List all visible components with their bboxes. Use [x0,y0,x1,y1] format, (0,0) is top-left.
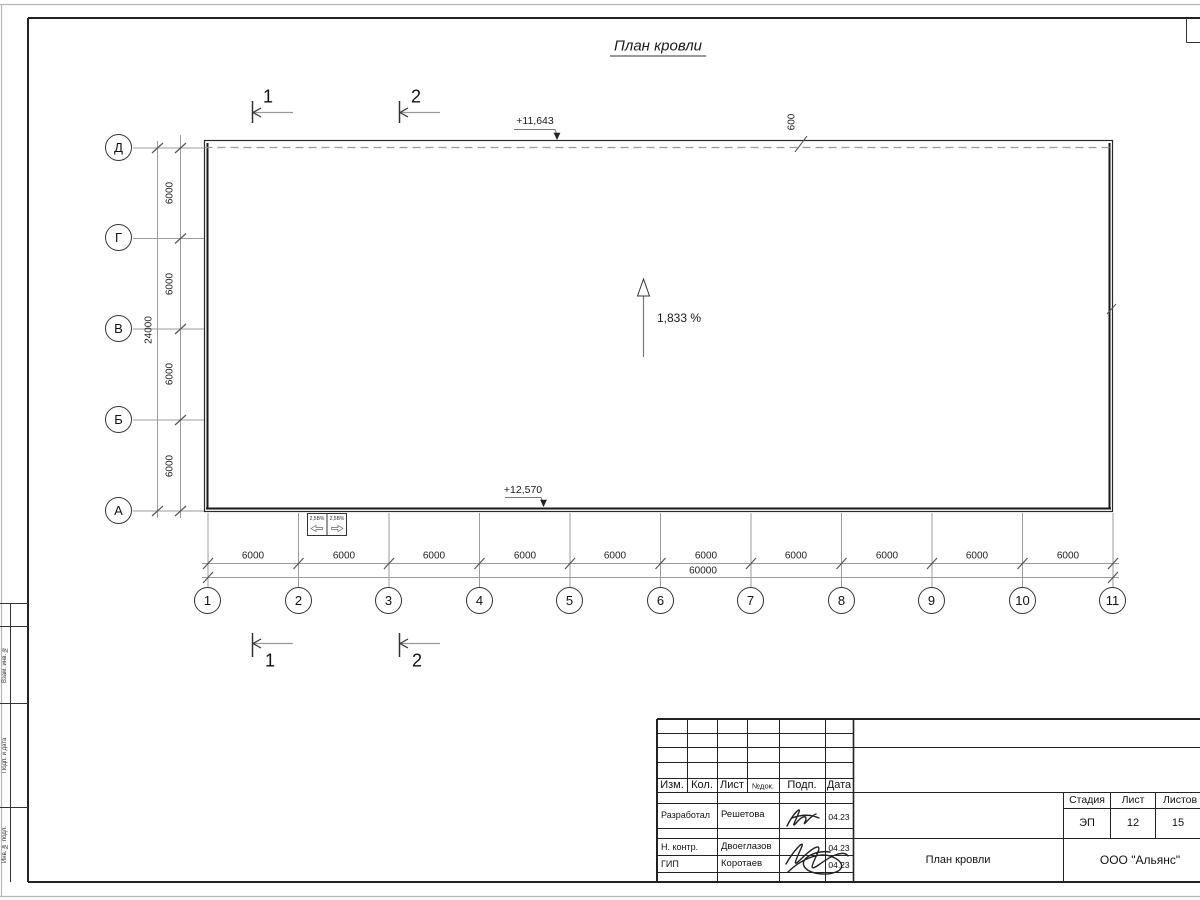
tb-sheet-label: Лист [1122,794,1145,806]
section-label-1-bottom: 1 [265,651,275,672]
axis-circle-11: 11 [1099,587,1126,614]
section-label-2-bottom: 2 [412,651,422,672]
dim-6000: 6000 [333,551,355,562]
axis-circle-4: 4 [466,587,493,614]
axis-circle-left-v: В [105,315,132,342]
tb-stage-value: ЭП [1079,817,1095,829]
tb-col-data: Дата [827,779,851,791]
axis-label: 6 [657,593,664,608]
tb-doc-name: План кровли [926,854,991,866]
funnel-label-right: 2,5В% [330,516,345,522]
tb-col-izm: Изм. [660,779,684,791]
tb-name-developer: Решетова [721,809,765,820]
tb-name-ncontrol: Двоеглазов [721,841,772,852]
axis-label: Б [114,412,123,427]
axis-label: 5 [566,593,573,608]
axis-label: 3 [385,593,392,608]
axis-label: 11 [1106,593,1120,608]
axis-label: 10 [1015,593,1029,608]
dim-6000: 6000 [876,551,898,562]
axis-label: 1 [204,593,211,608]
axis-circle-left-d: Д [105,134,132,161]
tb-sheets-value: 15 [1172,817,1184,829]
tb-col-podp: Подп. [787,779,816,791]
tb-sheet-value: 12 [1127,817,1139,829]
section-label-1-top: 1 [263,87,273,108]
drawing-sheet: План кровли 1 2 1 2 +11,643 +12,570 600 … [0,0,1200,900]
tb-col-list: Лист [720,779,744,791]
axis-circle-10: 10 [1009,587,1036,614]
tb-date-ncontrol: 04.23 [828,843,849,853]
dim-6000: 6000 [966,551,988,562]
tb-role-gip: ГИП [661,859,679,869]
axis-label: 2 [295,593,302,608]
axis-label: В [114,321,123,336]
tb-date-gip: 04.23 [828,860,849,870]
dim-6000: 6000 [604,551,626,562]
frame-corner-box [1187,18,1200,43]
dim-6000-v: 6000 [165,273,176,295]
dim-6000: 6000 [514,551,536,562]
overhang-dim-label: 600 [787,114,798,131]
drawing-linework [0,0,1200,900]
section-label-2-top: 2 [411,87,421,108]
dim-6000-v: 6000 [165,182,176,204]
tb-col-ndok: №док. [752,782,774,791]
axis-label: 8 [838,593,845,608]
elevation-bottom-label: +12,570 [504,484,542,496]
axis-circle-left-g: Г [105,224,132,251]
dim-6000-v: 6000 [165,455,176,477]
axis-circle-7: 7 [737,587,764,614]
margin-label-inv: Инв. № подл. [0,807,10,882]
axis-circle-left-b: Б [105,406,132,433]
dim-6000-v: 6000 [165,363,176,385]
margin-label-podp-data: Подп. и дата [0,703,10,807]
tb-stage-label: Стадия [1069,794,1105,806]
axis-circle-6: 6 [647,587,674,614]
tb-role-developer: Разработал [661,810,710,820]
dim-6000: 6000 [423,551,445,562]
dim-6000: 6000 [242,551,264,562]
axis-label: 7 [747,593,754,608]
tb-company: ООО "Альянс" [1100,853,1180,867]
axis-circle-3: 3 [375,587,402,614]
axis-label: 4 [476,593,483,608]
tb-sheets-label: Листов [1163,794,1197,806]
axis-circle-8: 8 [828,587,855,614]
axis-circle-5: 5 [556,587,583,614]
tb-col-kol: Кол. [691,779,713,791]
tb-date-developer: 04.23 [828,812,849,822]
elevation-leader-top [514,130,560,141]
axis-circle-2: 2 [285,587,312,614]
axis-circle-9: 9 [918,587,945,614]
dim-6000: 6000 [1057,551,1079,562]
axis-label: 9 [928,593,935,608]
funnel-label-left: 2,5В% [310,516,325,522]
tb-name-gip: Коротаев [721,858,762,869]
dim-6000: 6000 [695,551,717,562]
axis-label: Г [115,230,122,245]
roof-outline [205,141,1113,512]
margin-label-vzam: Взам. инв. № [0,626,10,703]
axis-circle-left-a: А [105,497,132,524]
axis-label: Д [114,140,123,155]
axis-circle-1: 1 [194,587,221,614]
slope-label: 1,833 % [657,311,701,325]
dim-6000: 6000 [785,551,807,562]
dim-total-60000: 60000 [689,566,717,577]
tb-role-ncontrol: Н. контр. [661,842,698,852]
elevation-top-label: +11,643 [516,115,553,127]
dim-total-24000: 24000 [144,316,155,344]
axis-label: А [114,503,123,518]
drawing-title: План кровли [610,38,706,57]
